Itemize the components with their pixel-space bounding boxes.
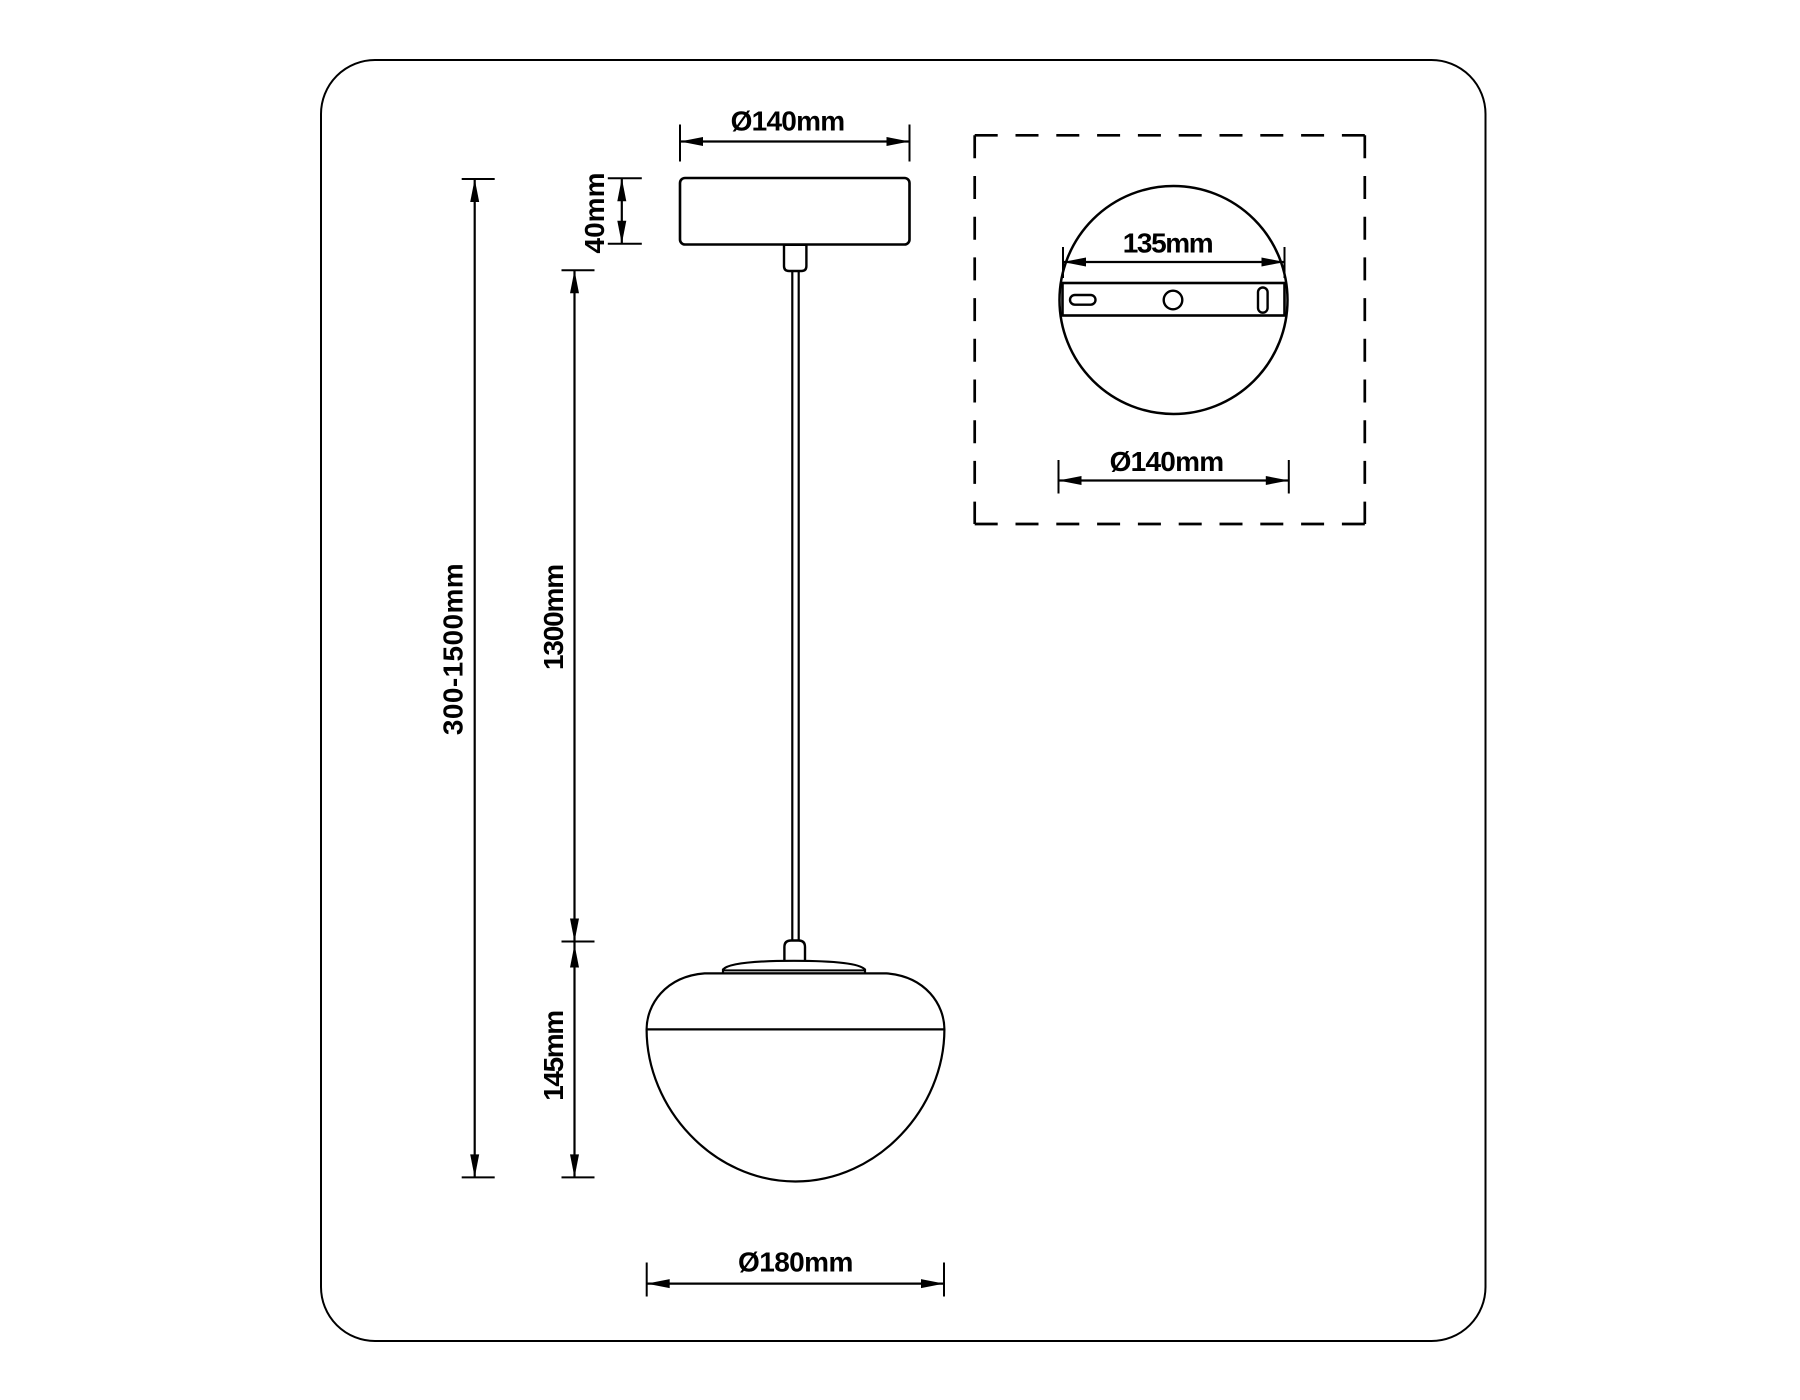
svg-text:40mm: 40mm bbox=[579, 173, 610, 254]
svg-text:1300mm: 1300mm bbox=[538, 565, 569, 670]
svg-text:300-1500mm: 300-1500mm bbox=[438, 563, 469, 735]
svg-text:Ø180mm: Ø180mm bbox=[738, 1247, 853, 1278]
svg-text:Ø140mm: Ø140mm bbox=[731, 106, 845, 137]
svg-text:Ø140mm: Ø140mm bbox=[1110, 446, 1224, 477]
svg-text:135mm: 135mm bbox=[1123, 228, 1213, 259]
svg-text:145mm: 145mm bbox=[538, 1011, 569, 1101]
